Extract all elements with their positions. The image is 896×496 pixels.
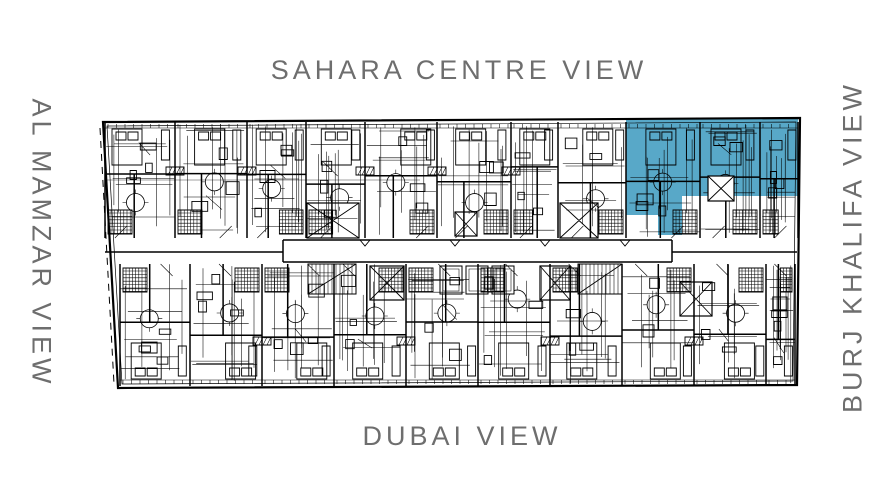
floorplan-svg	[0, 0, 896, 496]
floorplan-page: SAHARA CENTRE VIEW AL MAMZAR VIEW BURJ K…	[0, 0, 896, 496]
